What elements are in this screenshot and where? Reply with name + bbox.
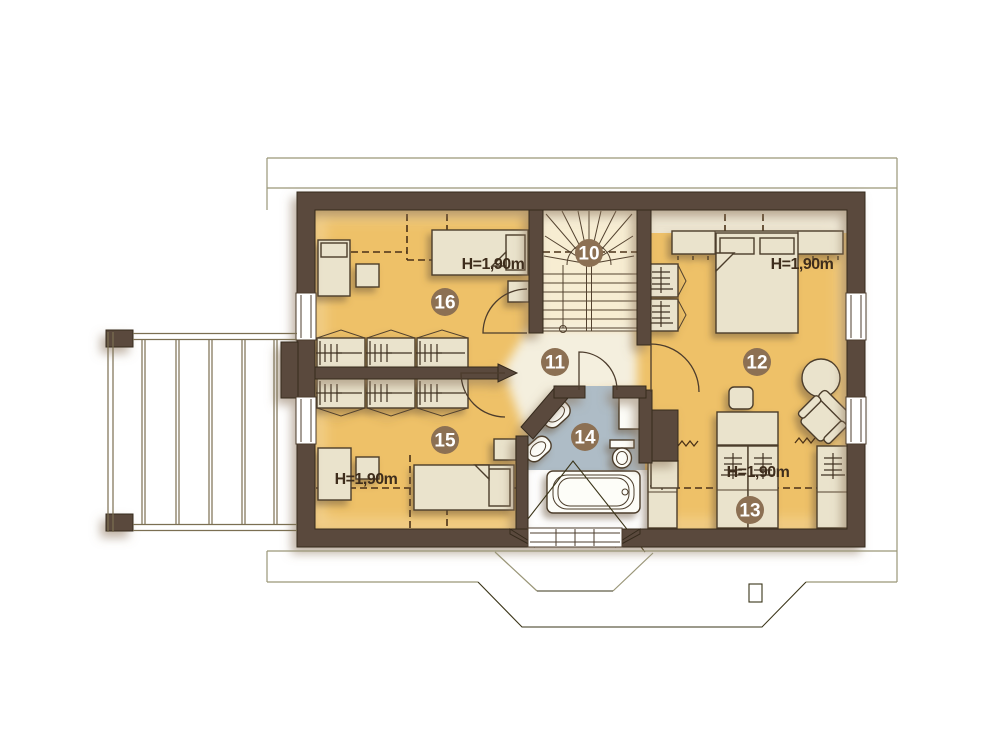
room-badge-11: 11 [541,348,569,376]
window-left-room15 [296,397,316,444]
terrace-post-top [106,330,133,347]
room-number-12: 12 [746,353,767,374]
window-bathroom-bay [528,528,622,547]
room-number-10: 10 [578,244,599,265]
wall-bathroom-top-left [554,386,585,398]
room-number-15: 15 [434,431,456,452]
floor-plan-drawing: 10 11 12 13 14 15 16 H=1,90m H=1,90m [0,0,1000,750]
exterior-pier [281,342,298,398]
wardrobe-room13-right [817,446,848,528]
bed-room16-left [318,240,350,296]
wall-room16-stairs [529,210,543,333]
staircase-floor [543,210,637,331]
window-right-room12 [846,293,866,340]
room-badge-14: 14 [571,423,599,451]
chair-room12 [729,387,753,409]
wall-hall-room12 [637,210,651,345]
terrace-post-bottom [106,514,133,531]
double-bed-room12 [716,233,798,333]
room-number-13: 13 [739,501,760,522]
round-table-room12 [802,359,840,397]
wall-bathroom-top-right [613,386,646,398]
terrace [108,332,297,532]
window-right-room13 [846,397,866,444]
toilet [610,440,634,468]
height-label-room12: H=1,90m [771,256,834,273]
terrace-slats [142,340,277,524]
washbasin-cabinet [651,461,678,488]
room-number-16: 16 [434,293,455,314]
room-badge-13: 13 [736,496,764,524]
bay-roof-hips [495,552,653,591]
height-label-room13: H=1,90m [727,464,790,481]
floor-plan-page: 10 11 12 13 14 15 16 H=1,90m H=1,90m [0,0,1000,750]
nightstand-room16 [356,264,379,287]
nightstand-room15-door [494,439,516,460]
room-badge-10: 10 [575,239,603,267]
wall-bathroom-right [639,390,652,463]
built-in-cabinet-dark [652,410,678,461]
room-badge-16: 16 [431,288,459,316]
room-number-14: 14 [574,428,596,449]
roof-dormer-outline [478,582,806,627]
chimney [749,584,762,602]
desk-room12 [717,412,778,445]
height-label-room16: H=1,90m [462,256,525,273]
washing-machine [619,396,641,429]
room-number-11: 11 [545,353,566,374]
room-badge-12: 12 [743,348,771,376]
bed-room15 [414,465,514,510]
window-left-room16 [296,293,316,340]
room-badge-15: 15 [431,426,459,454]
wall-room15-bathroom [516,436,528,529]
height-label-room15: H=1,90m [335,471,398,488]
